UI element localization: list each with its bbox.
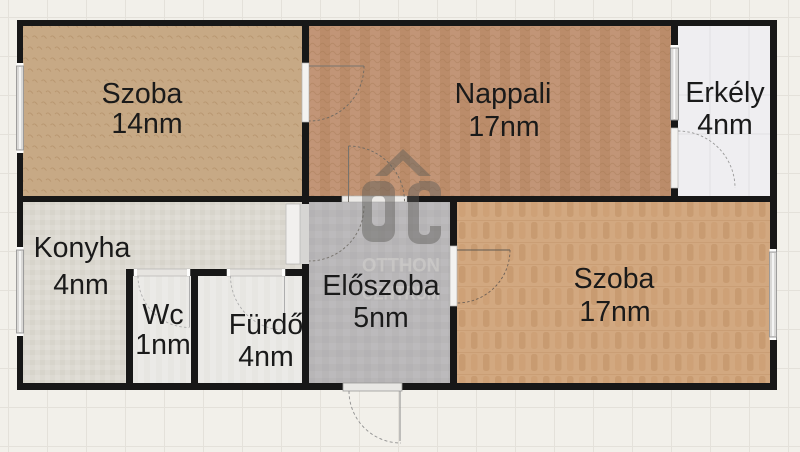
svg-text:Erkély: Erkély	[685, 77, 765, 109]
svg-text:4nm: 4nm	[697, 109, 752, 141]
svg-text:Előszoba: Előszoba	[322, 270, 439, 302]
svg-text:4nm: 4nm	[238, 341, 293, 373]
svg-text:17nm: 17nm	[468, 111, 539, 143]
svg-text:17nm: 17nm	[579, 296, 650, 328]
svg-text:5nm: 5nm	[353, 302, 408, 334]
svg-text:Konyha: Konyha	[34, 232, 131, 264]
svg-text:Fürdő: Fürdő	[229, 309, 303, 341]
svg-text:Wc: Wc	[142, 299, 183, 331]
svg-text:14nm: 14nm	[111, 108, 182, 140]
svg-text:Szoba: Szoba	[102, 78, 183, 110]
svg-text:1nm: 1nm	[135, 329, 190, 361]
svg-text:Szoba: Szoba	[574, 263, 655, 295]
svg-text:Nappali: Nappali	[455, 78, 552, 110]
svg-text:4nm: 4nm	[53, 269, 108, 301]
